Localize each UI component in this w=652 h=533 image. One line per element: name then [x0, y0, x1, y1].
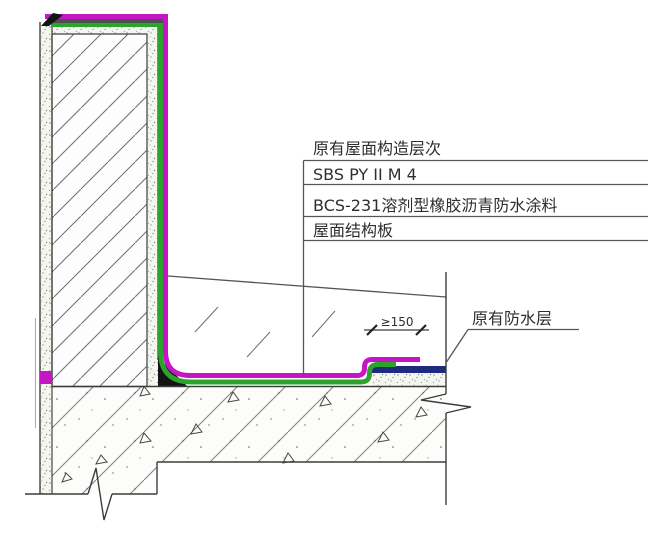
parapet-capping — [41, 13, 168, 27]
through-wall-membrane-block — [40, 371, 52, 384]
existing-waterproof-layer — [372, 366, 446, 373]
callout-layer-3: 屋面结构板 — [313, 221, 393, 240]
existing-waterproofing-text: 原有防水层 — [472, 309, 552, 328]
callout-layer-2: BCS-231溶剂型橡胶沥青防水涂料 — [313, 196, 557, 215]
cap-coating-strip — [51, 23, 160, 27]
cap-membrane-strip — [45, 14, 168, 19]
callout-layer-1: SBS PY II M 4 — [313, 165, 417, 184]
existing-roof-layers — [372, 366, 446, 387]
wall-render-left — [40, 26, 52, 494]
metal-capping-strip — [49, 19, 163, 23]
dimension-text: ≥150 — [381, 315, 414, 329]
wall-masonry-core — [52, 34, 147, 387]
callout-title: 原有屋面构造层次 — [313, 139, 441, 158]
existing-screed-strip — [372, 373, 446, 387]
wall-render-right — [147, 34, 158, 386]
construction-detail-drawing: 原有屋面构造层次 SBS PY II M 4 BCS-231溶剂型橡胶沥青防水涂… — [0, 0, 652, 533]
wall-render-top — [52, 26, 158, 34]
